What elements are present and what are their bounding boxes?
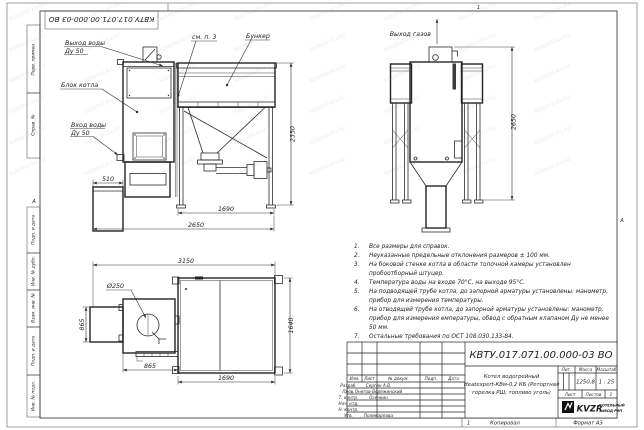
note-item: 7.Остальные требования по ОСТ 108.030.13… (352, 333, 610, 342)
note-text: На боковой стенке котла в области топочн… (369, 261, 610, 279)
stamp-label-sprav: Справ. № (31, 114, 37, 136)
product-name-line2: Heatexpert-КВм-0,2 КБ (Ретортная (464, 382, 560, 388)
sheet-label: Лист (564, 392, 576, 397)
label-water-in-2: Ду 50 (70, 130, 90, 137)
stamp-label-podp-data-2: Подп. и дата (31, 336, 37, 366)
name-utv: Поликарпова (364, 413, 394, 418)
label-chimney-dia: Ø250 (106, 282, 124, 290)
stamp-label-inv-dubl: Инв. № дубл. (31, 256, 37, 286)
hopper-outlet (201, 153, 219, 160)
col-izm: Изм. (350, 376, 360, 381)
role-nkontr: Н. контр. (338, 407, 358, 412)
footer-copy-num: 1 (467, 421, 470, 427)
rear-ash-chute (426, 186, 446, 228)
boiler-middle-door (133, 133, 166, 160)
name-tkontr: Осечкин (369, 395, 388, 400)
label-boiler-block: Блок котла (61, 82, 98, 89)
plan-view: 3150 Ø250 865 865 1690 1640 (79, 258, 295, 385)
note-number: 3. (352, 261, 369, 279)
label-see-note-3: см. п. 3 (192, 34, 216, 41)
role-prov: Пров. (342, 389, 354, 394)
technical-notes: 1.Все размеры для справок. 2.Неуказанные… (352, 243, 610, 342)
sheets-label: Листов (585, 392, 602, 397)
sheets-value: 1 (610, 392, 613, 397)
dim-1640: 1640 (288, 317, 295, 333)
screw-conveyor (247, 165, 254, 176)
note-item: 6.На отводящей трубе котла, до запорной … (352, 306, 610, 333)
hopper-wall (217, 108, 265, 154)
note-item: 5.На подводящей трубе котла, до запорной… (352, 288, 610, 306)
mass-value: 1250,8 (576, 380, 595, 386)
note-number: 7. (352, 333, 369, 342)
plan-boiler (123, 299, 175, 353)
note-number: 6. (352, 306, 369, 333)
stamp-label-vzam-inv: Взам. инв. № (31, 293, 37, 323)
title-block: Изм. Лист № докум. Подп. Дата Разраб. Се… (338, 342, 624, 418)
company-line2: ЗАВОД РЭП (599, 409, 622, 413)
label-water-out-1: Выход воды (65, 40, 105, 47)
col-doc: № докум. (387, 376, 409, 381)
drawing-sheet: КВТУ.017.071.00.000-03 ВО Перв. примен. … (0, 0, 644, 430)
col-sign: Подп. (425, 376, 438, 381)
boiler-upper-door (127, 68, 171, 98)
note-number: 5. (352, 288, 369, 306)
scale-value: 1 : 25 (599, 380, 615, 386)
note-text: На подводящей трубе котла, до запорной а… (369, 288, 610, 306)
dim-510: 510 (102, 176, 114, 183)
dim-1690-plan: 1690 (218, 375, 234, 382)
zone-marker-right: А (619, 218, 624, 224)
rear-right-drum (462, 64, 483, 103)
company-line1: КОТЕЛЬНЫЙ (599, 403, 625, 408)
dim-3150: 3150 (178, 258, 194, 265)
footer-copied: Копировал (490, 421, 520, 427)
note-text: Неуказанные предельные отклонения размер… (369, 252, 610, 261)
fold-mark-top: 1 (477, 5, 480, 11)
rear-view: Выход газов 2650 (390, 19, 518, 232)
note-text: Температура воды на входе 70°С, на выход… (369, 279, 610, 288)
name-prov: Онегов-Вережинский (355, 389, 403, 394)
dim-865-left: 865 (79, 318, 86, 330)
col-date: Дата (447, 376, 459, 381)
hopper-wall (188, 108, 203, 154)
note-item: 4.Температура воды на входе 70°С, на вых… (352, 279, 610, 288)
front-view: 510 1690 2650 2350 Выход воды Ду 50 Блок… (60, 33, 297, 232)
note-text: На отводящей трубе котла, до запорной ар… (369, 306, 610, 333)
label-water-out-2: Ду 50 (64, 48, 84, 55)
rear-left-drum (391, 64, 412, 103)
note-number: 2. (352, 252, 369, 261)
rear-access-door (455, 141, 463, 158)
conveyor-motor (254, 162, 267, 179)
footer-format: Формат А3 (573, 421, 603, 427)
mass-label: Масса (579, 367, 593, 372)
note-number: 1. (352, 243, 369, 252)
role-razrab: Разраб. (340, 383, 356, 388)
role-nachotd: Нач. отд. (338, 401, 358, 406)
name-razrab: Сергин А.В. (366, 383, 392, 388)
label-water-in-1: Вход воды (71, 122, 106, 129)
col-list: Лист (363, 376, 375, 381)
note-item: 1.Все размеры для справок. (352, 243, 610, 252)
gas-outlet-box (429, 47, 452, 62)
stamp-label-podp-data-1: Подп. и дата (31, 215, 37, 245)
lit-label: Лит. (561, 367, 572, 372)
note-item: 2.Неуказанные предельные отклонения разм… (352, 252, 610, 261)
label-bunker: Бункер (246, 33, 270, 40)
dim-865-bottom: 865 (144, 363, 156, 370)
doc-number-rotated: КВТУ.017.071.00.000-03 ВО (48, 15, 154, 24)
scale-label: Масштаб (597, 367, 617, 372)
note-text: Все размеры для справок. (369, 243, 610, 252)
drawing-sheet-svg: КВТУ.017.071.00.000-03 ВО Перв. примен. … (0, 0, 644, 430)
dim-1690-front: 1690 (218, 206, 234, 213)
dim-2650-front: 2650 (188, 222, 204, 229)
stamp-label-perv-primen: Перв. примен. (31, 43, 37, 76)
note-item: 3.На боковой стенке котла в области топо… (352, 261, 610, 279)
note-text: Остальные требования по ОСТ 108.030.133-… (369, 333, 610, 342)
plan-bunker (178, 278, 275, 373)
dim-2350: 2350 (290, 126, 297, 142)
plan-ash-box (90, 307, 123, 342)
title-doc-number: КВТУ.017.071.00.000-03 ВО (469, 350, 612, 361)
role-tkontr: Т. контр. (339, 395, 358, 400)
boiler-lower-section (125, 162, 170, 197)
zone-marker-left: А (31, 199, 36, 205)
product-name-line3: горелка РШ, топливо уголь) (472, 390, 551, 396)
label-gas-out: Выход газов (390, 31, 432, 38)
dim-2650-rear: 2650 (511, 114, 518, 130)
stamp-label-inv-podl: Инв. № подл. (31, 381, 37, 411)
note-number: 4. (352, 279, 369, 288)
role-utv: Утв. (344, 413, 353, 418)
ash-box (93, 187, 123, 231)
product-name-line1: Котел водогрейный (484, 374, 540, 380)
